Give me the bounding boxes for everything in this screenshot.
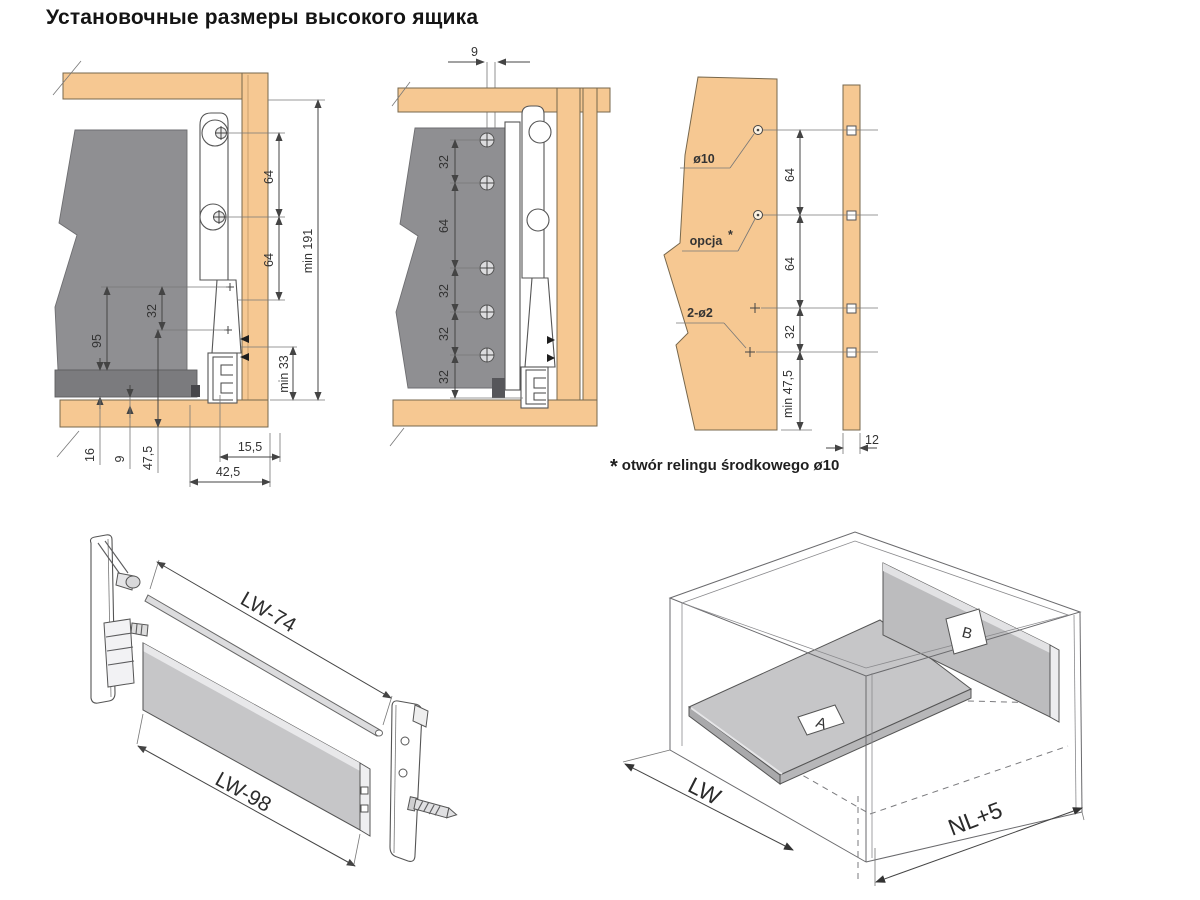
screw-icon xyxy=(480,305,494,319)
dim-32-1: 32 xyxy=(437,155,451,169)
dim-9: 9 xyxy=(113,455,127,462)
side-panel-edge-view xyxy=(843,85,860,430)
dim-32-3: 32 xyxy=(437,327,451,341)
back-bracket-section-drawing: 9 xyxy=(388,40,623,465)
exploded-parts-drawing: LW-74 LW-98 xyxy=(58,515,488,895)
assembly-iso-drawing: A B LW NL+5 xyxy=(598,518,1183,900)
dim-64-2: 64 xyxy=(783,257,797,271)
dim-9-label: 9 xyxy=(471,45,478,59)
dim-64-lower: 64 xyxy=(262,253,276,267)
label-opcja: opcja xyxy=(690,234,724,248)
screw-icon xyxy=(480,176,494,190)
drilling-template-drawing: ø10 opcja * 2-ø2 64 64 32 min 4 xyxy=(640,55,950,475)
dim-32: 32 xyxy=(783,325,797,339)
dim-47-5: 47,5 xyxy=(141,446,155,470)
front-rail-section-drawing: 64 64 min 33 min 191 95 32 16 9 xyxy=(45,55,380,500)
right-bracket xyxy=(390,701,458,862)
dim-min475: min 47,5 xyxy=(781,370,795,418)
dim-32: 32 xyxy=(145,304,159,318)
page-title: Установочные размеры высокого ящика xyxy=(46,6,478,30)
dim-64-1: 64 xyxy=(783,168,797,182)
dim-42-5: 42,5 xyxy=(216,465,240,479)
dim-32-4: 32 xyxy=(437,370,451,384)
screw-icon xyxy=(480,133,494,147)
dim-32-2: 32 xyxy=(437,284,451,298)
drawing-sheet: Установочные размеры высокого ящика xyxy=(0,0,1200,900)
label-opcja-star: * xyxy=(728,228,733,242)
dimension-lines: 64 64 32 min 47,5 12 xyxy=(781,130,879,454)
dim-15-5: 15,5 xyxy=(238,440,262,454)
dim-lw74: LW-74 xyxy=(237,587,301,637)
footnote-star: * xyxy=(610,456,618,478)
rail-profile xyxy=(521,106,555,408)
dim-12: 12 xyxy=(865,433,879,447)
label-d10: ø10 xyxy=(693,152,715,166)
label-2d2: 2-ø2 xyxy=(687,306,713,320)
dim-nl5: NL+5 xyxy=(945,796,1006,840)
dim-min191: min 191 xyxy=(301,229,315,274)
drawer-side-panel-section xyxy=(396,122,520,398)
footnote: *otwór relingu środkowego ø10 xyxy=(610,456,839,479)
dim-min33: min 33 xyxy=(277,355,291,393)
screw-icon xyxy=(480,261,494,275)
screw-icon xyxy=(131,623,148,636)
dim-64: 64 xyxy=(437,219,451,233)
drawer-bottom-panel xyxy=(55,370,197,397)
dimension-lines-right: 64 64 min 33 min 191 xyxy=(226,100,325,400)
drawer-side-panel-section xyxy=(55,130,200,397)
dim-16: 16 xyxy=(83,448,97,462)
left-bracket xyxy=(91,535,149,703)
dim-95: 95 xyxy=(90,334,104,348)
screw-icon xyxy=(480,348,494,362)
dim-64-upper: 64 xyxy=(262,170,276,184)
footnote-text: otwór relingu środkowego ø10 xyxy=(622,457,840,474)
dimensions: LW NL+5 xyxy=(623,750,1084,886)
